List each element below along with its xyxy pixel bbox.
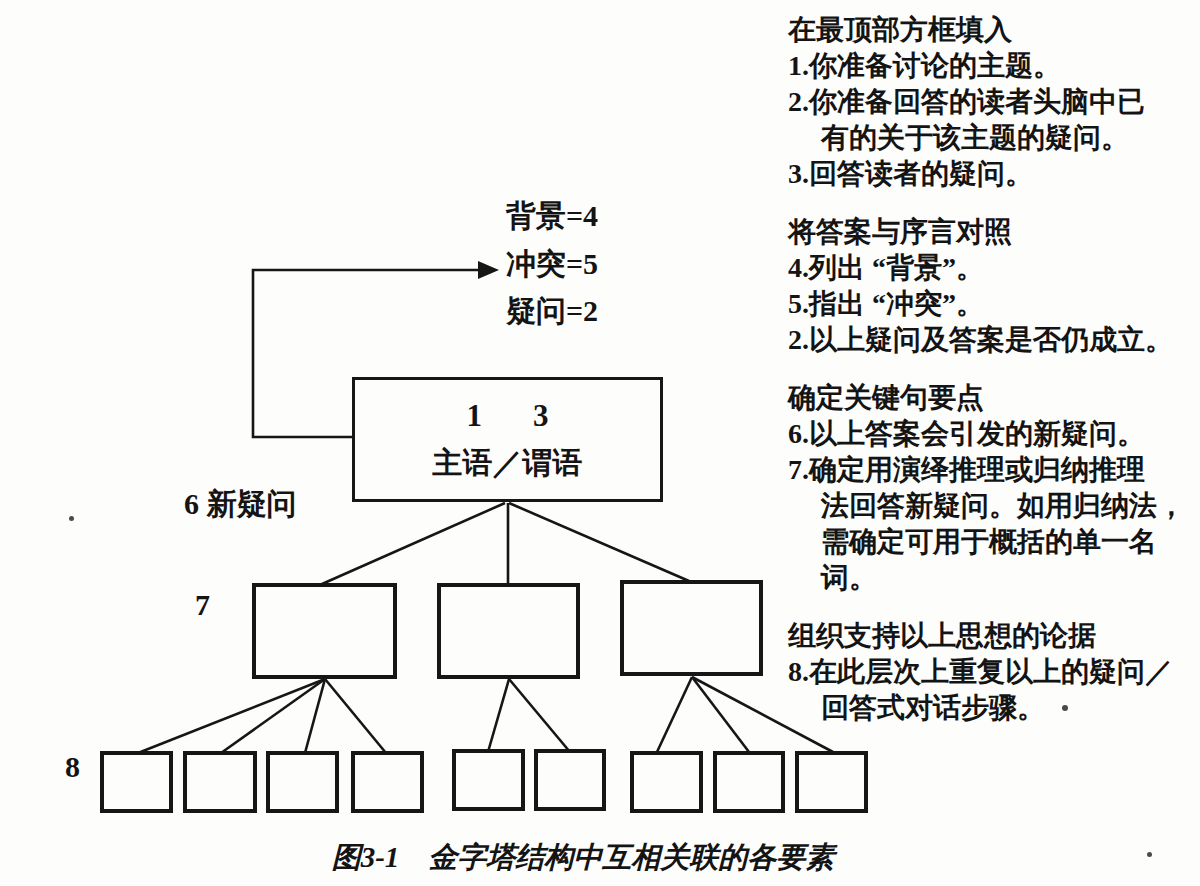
note-line: 4.列出 “背景”。 [788, 250, 1200, 286]
support-box-4 [351, 751, 424, 813]
scan-dot [1062, 705, 1068, 711]
label-new-question: 6 新疑问 [184, 487, 297, 521]
figure-caption: 图3-1 金字塔结构中互相关联的各要素 [283, 838, 883, 878]
note-title: 在最顶部方框填入 [788, 12, 1200, 48]
keyline-box-1 [252, 583, 397, 679]
note-line: 1.你准备讨论的主题。 [788, 48, 1200, 84]
note-line: 回答式对话步骤。 [788, 690, 1200, 726]
support-box-8 [713, 751, 785, 813]
connector-line [509, 503, 689, 581]
support-box-7 [630, 751, 703, 813]
note-block-keyline: 确定关键句要点 6.以上答案会引发的新疑问。 7.确定用演绎推理或归纳推理 法回… [788, 380, 1200, 596]
connector-line [221, 679, 325, 753]
label-conflict: 冲突=5 [506, 247, 598, 281]
label-step-8: 8 [65, 750, 80, 784]
note-line: 需确定可用于概括的单一名 [788, 524, 1200, 560]
label-background: 背景=4 [506, 199, 598, 233]
label-step-7: 7 [195, 588, 210, 622]
note-line: 3.回答读者的疑问。 [788, 156, 1200, 192]
support-box-5 [452, 749, 525, 811]
note-title: 组织支持以上思想的论据 [788, 618, 1200, 654]
keyline-box-2 [437, 583, 580, 679]
note-block-top-box: 在最顶部方框填入 1.你准备讨论的主题。 2.你准备回答的读者头脑中已 有的关于… [788, 12, 1200, 192]
support-box-9 [795, 751, 868, 813]
book-page: 背景=4 冲突=5 疑问=2 1 3 主语／谓语 6 新疑问 7 8 在最顶部方… [0, 0, 1200, 886]
note-line: 6.以上答案会引发的新疑问。 [788, 416, 1200, 452]
note-line: 7.确定用演绎推理或归纳推理 [788, 452, 1200, 488]
note-title: 确定关键句要点 [788, 380, 1200, 416]
scan-dot [69, 516, 74, 521]
support-box-6 [534, 749, 606, 811]
arrow-head-icon [478, 261, 499, 279]
note-line: 2.你准备回答的读者头脑中已 [788, 84, 1200, 120]
support-box-3 [266, 751, 339, 813]
top-box-subject-predicate: 主语／谓语 [433, 443, 583, 484]
label-question: 疑问=2 [506, 294, 598, 328]
note-line: 5.指出 “冲突”。 [788, 286, 1200, 322]
scan-dot [1147, 852, 1152, 857]
note-line: 8.在此层次上重复以上的疑问／ [788, 654, 1200, 690]
support-box-2 [183, 751, 257, 813]
connector-line [322, 503, 505, 584]
keyline-box-3 [620, 580, 763, 676]
note-line: 法回答新疑问。如用归纳法， [788, 488, 1200, 524]
note-block-preface: 将答案与序言对照 4.列出 “背景”。 5.指出 “冲突”。 2.以上疑问及答案… [788, 214, 1200, 358]
connector-line [692, 677, 749, 752]
top-box: 1 3 主语／谓语 [352, 377, 663, 502]
connector-line [138, 679, 325, 753]
connector-line [509, 679, 570, 752]
support-box-1 [100, 751, 173, 813]
note-line: 2.以上疑问及答案是否仍成立。 [788, 322, 1200, 358]
note-block-support: 组织支持以上思想的论据 8.在此层次上重复以上的疑问／ 回答式对话步骤。 [788, 618, 1200, 726]
top-box-numbers: 1 3 [457, 395, 559, 437]
connector-line [657, 677, 692, 752]
note-title: 将答案与序言对照 [788, 214, 1200, 250]
note-line: 词。 [788, 560, 1200, 596]
instruction-column: 在最顶部方框填入 1.你准备讨论的主题。 2.你准备回答的读者头脑中已 有的关于… [788, 12, 1200, 726]
note-line: 有的关于该主题的疑问。 [788, 120, 1200, 156]
connector-line [488, 679, 509, 752]
connector-line [325, 679, 386, 753]
